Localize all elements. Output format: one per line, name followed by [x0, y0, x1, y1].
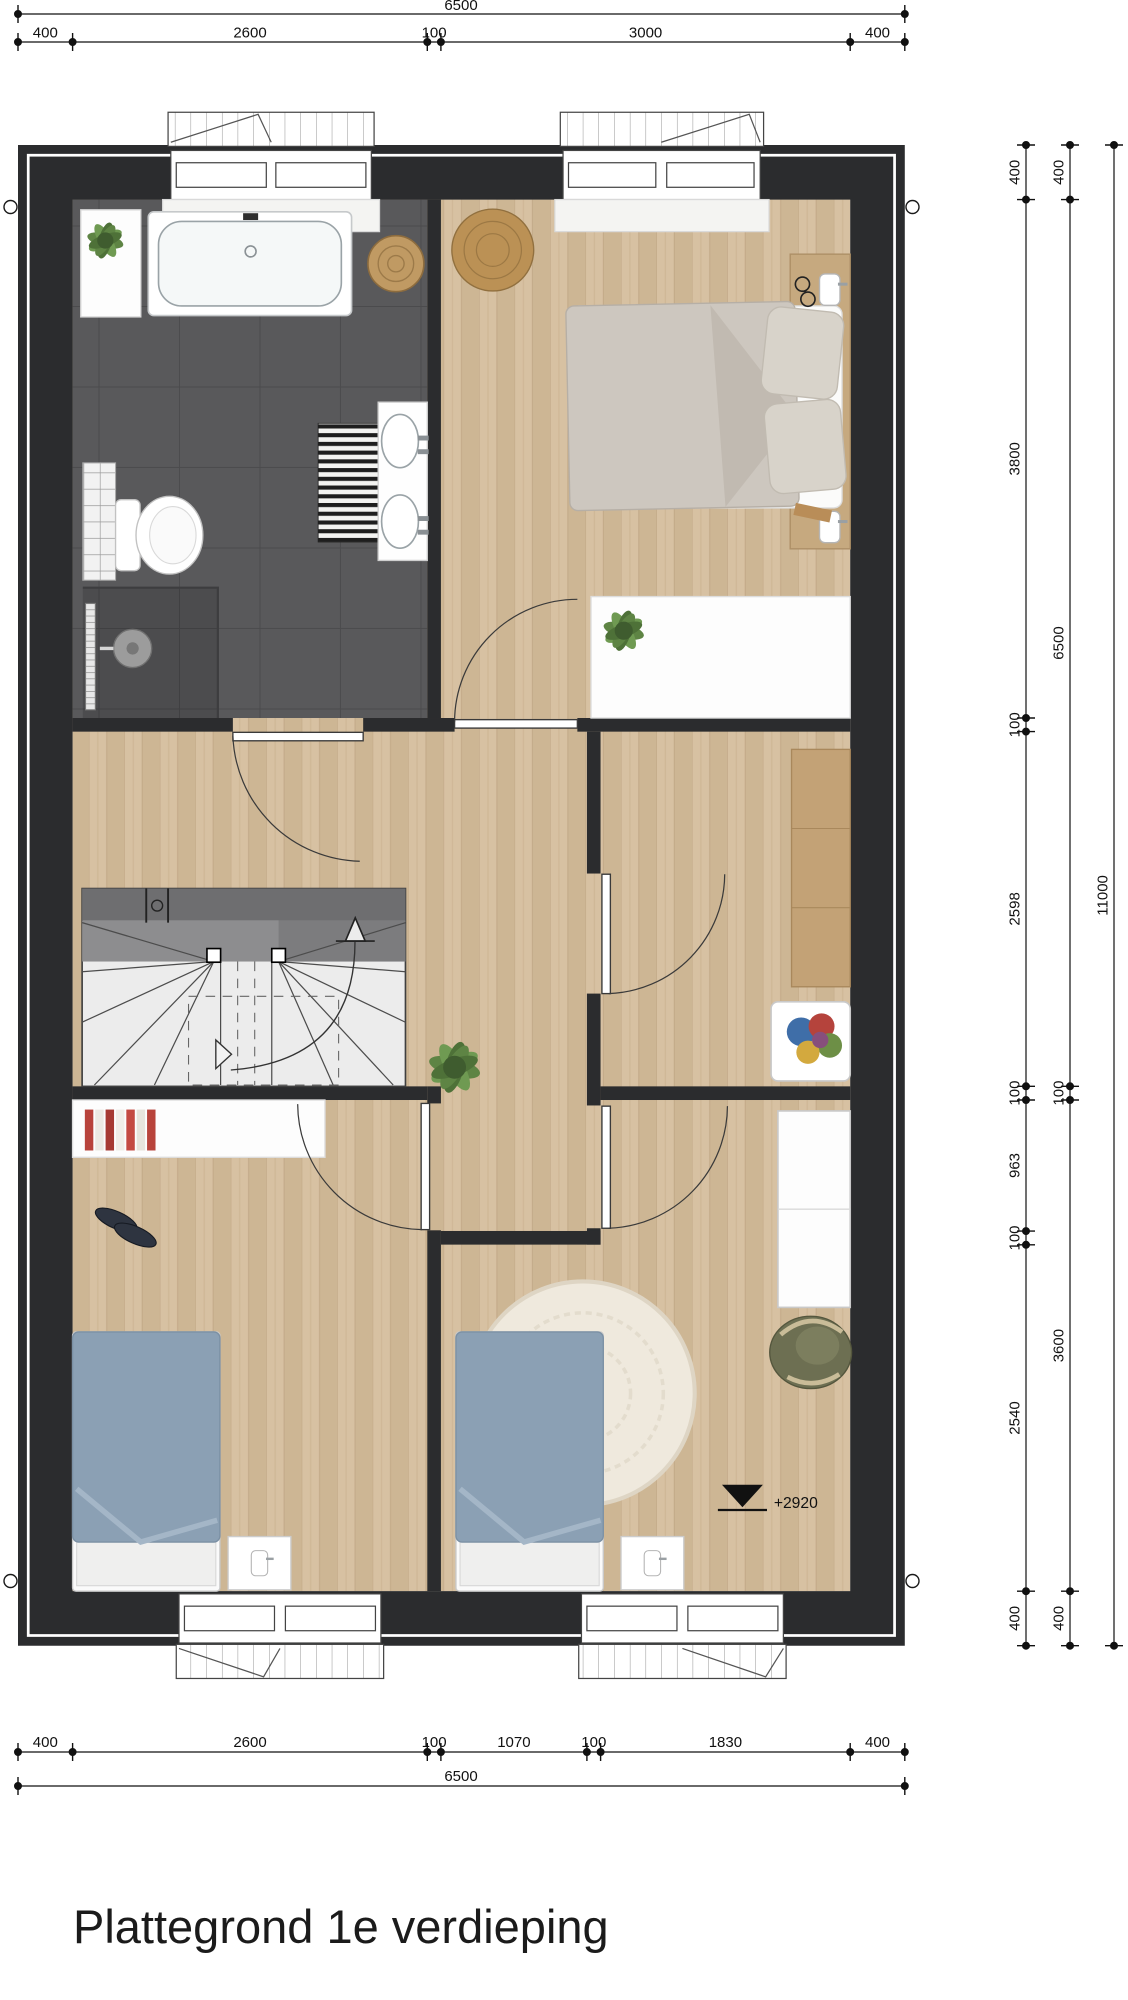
duffel-bag-icon: [770, 1316, 852, 1388]
shower-drain: [86, 603, 96, 709]
laundry-basket: [771, 1002, 850, 1081]
window-kids-bedroom-right: [579, 1594, 786, 1679]
dim-label: 2600: [233, 25, 266, 42]
dim-label: 3600: [1051, 1329, 1068, 1362]
dim-label: 400: [1007, 1606, 1024, 1631]
wall-closetroom-west-2: [587, 994, 601, 1106]
pillow: [760, 306, 845, 401]
dim-label: 6500: [444, 1768, 477, 1785]
dim-label: 2600: [233, 1734, 266, 1751]
dim-right-outer: 11000: [1095, 142, 1124, 1649]
floorplan-page: +2920: [0, 0, 1128, 2000]
corner-marker-icon: [906, 1575, 919, 1588]
corner-marker-icon: [4, 1575, 17, 1588]
dim-bottom-segments: 400 2600 100 1070 100 1830 400: [15, 1734, 908, 1761]
dim-label: 400: [1007, 160, 1024, 185]
rattan-stool-icon: [368, 236, 424, 292]
window-kids-bedroom-left: [176, 1594, 383, 1679]
dim-label: 400: [865, 1734, 890, 1751]
dim-label: 100: [422, 25, 447, 42]
dim-label: 400: [865, 25, 890, 42]
wall-closetroom-west-1: [587, 732, 601, 874]
dim-label: 100: [1007, 712, 1024, 737]
pillow: [763, 398, 847, 494]
dim-label: 963: [1007, 1153, 1024, 1178]
dim-label: 400: [1051, 160, 1068, 185]
wardrobe-white: [778, 1111, 850, 1307]
dim-right-middle: 400 6500 100 3600 400: [1051, 142, 1080, 1649]
wall-hall-north-1: [73, 718, 233, 732]
dim-label: 3000: [629, 25, 662, 42]
corner-marker-icon: [906, 201, 919, 214]
dim-label: 400: [33, 25, 58, 42]
double-sink-vanity: [378, 402, 428, 560]
wall-corridor-south: [441, 1231, 601, 1245]
single-bed: [456, 1332, 603, 1591]
dim-label: 1070: [497, 1734, 530, 1751]
stair-newel-post: [272, 949, 286, 963]
staircase: [82, 889, 405, 1087]
dim-bottom-overall: 6500: [15, 1768, 908, 1795]
plan: +2920: [18, 112, 905, 1678]
dim-label: 11000: [1095, 875, 1112, 916]
wardrobe-wood: [792, 749, 851, 986]
window-master-bedroom: [555, 112, 769, 231]
duvet: [73, 1332, 220, 1542]
single-bed: [73, 1332, 220, 1591]
wall-hall-north-2: [363, 718, 454, 732]
dim-label: 6500: [1051, 626, 1068, 659]
dim-label: 100: [422, 1734, 447, 1751]
dim-label: 2598: [1007, 892, 1024, 925]
dim-label: 1830: [709, 1734, 742, 1751]
page-title: Plattegrond 1e verdieping: [73, 1900, 609, 1953]
wall-closetroom-south: [601, 1086, 851, 1100]
dim-label: 2540: [1007, 1401, 1024, 1434]
dim-label: 400: [33, 1734, 58, 1751]
dim-label: 100: [1007, 1081, 1024, 1106]
wall-bedroom2-east-stub: [427, 1086, 441, 1103]
dim-label: 6500: [444, 0, 477, 14]
toilet-backsplash: [83, 463, 116, 580]
dim-label: 100: [1051, 1081, 1068, 1106]
wall-hall-north-3: [577, 718, 850, 732]
books-icon: [85, 1110, 156, 1151]
tub-faucet-icon: [243, 213, 258, 220]
corner-marker-icon: [4, 201, 17, 214]
stair-newel-post: [207, 949, 221, 963]
wall-bathroom-bedroom: [427, 200, 441, 718]
dim-top-overall: 6500: [15, 0, 908, 23]
bathtub: [148, 212, 351, 316]
dim-label: 100: [581, 1734, 606, 1751]
dim-label: 100: [1007, 1225, 1024, 1250]
bath-mat: [318, 423, 378, 542]
wall-between-kids-bedrooms: [427, 1230, 441, 1591]
wall-bedroom2-north: [73, 1086, 428, 1100]
duvet: [456, 1332, 603, 1542]
dim-label: 400: [1051, 1606, 1068, 1631]
elevation-label: +2920: [774, 1495, 818, 1512]
floorplan-drawing: +2920: [0, 0, 1128, 2000]
dim-label: 3800: [1007, 442, 1024, 475]
dim-right-inner: 400 3800 100 2598 100 963 100 2540 400: [1007, 142, 1036, 1649]
dim-top-segments: 400 2600 100 3000 400: [15, 25, 908, 52]
